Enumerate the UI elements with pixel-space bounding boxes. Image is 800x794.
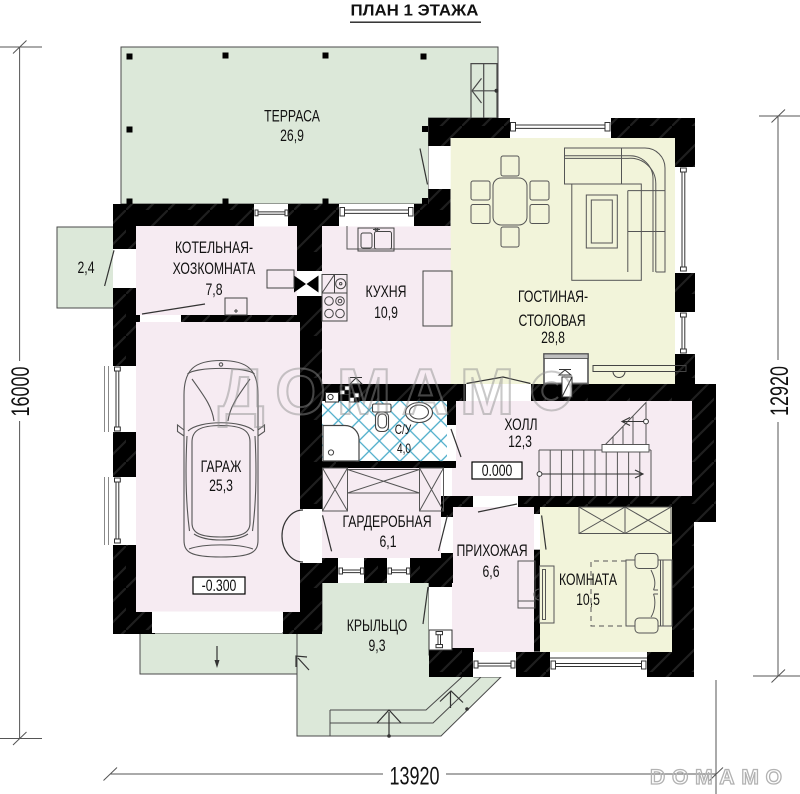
svg-text:-0.300: -0.300 xyxy=(202,576,237,595)
svg-text:26,9: 26,9 xyxy=(280,126,304,145)
svg-text:ХОЗКОМНАТА: ХОЗКОМНАТА xyxy=(173,259,256,278)
svg-text:25,3: 25,3 xyxy=(209,476,233,495)
svg-text:ГОСТИНАЯ-: ГОСТИНАЯ- xyxy=(518,287,588,306)
svg-text:КОТЕЛЬНАЯ-: КОТЕЛЬНАЯ- xyxy=(175,238,253,257)
svg-text:ПРИХОЖАЯ: ПРИХОЖАЯ xyxy=(456,541,527,560)
svg-text:ГАРАЖ: ГАРАЖ xyxy=(201,457,242,476)
svg-text:ДОМАМ: ДОМАМ xyxy=(218,355,525,428)
svg-text:16000: 16000 xyxy=(7,367,35,417)
svg-text:ПЛАН 1 ЭТАЖА: ПЛАН 1 ЭТАЖА xyxy=(351,3,479,20)
svg-text:9,3: 9,3 xyxy=(369,636,386,655)
svg-text:6,6: 6,6 xyxy=(483,562,500,581)
svg-text:2,4: 2,4 xyxy=(78,258,95,277)
svg-text:13920: 13920 xyxy=(390,763,440,791)
svg-text:6,1: 6,1 xyxy=(380,532,397,551)
svg-text:10,9: 10,9 xyxy=(374,303,398,322)
svg-text:0.000: 0.000 xyxy=(482,461,513,480)
svg-text:28,8: 28,8 xyxy=(541,328,565,347)
svg-text:DOMAMO: DOMAMO xyxy=(650,766,789,789)
svg-text:ТЕРРАСА: ТЕРРАСА xyxy=(264,107,320,126)
svg-text:ГАРДЕРОБНАЯ: ГАРДЕРОБНАЯ xyxy=(342,512,431,531)
svg-text:КУХНЯ: КУХНЯ xyxy=(366,282,407,301)
svg-text:4,0: 4,0 xyxy=(397,440,411,456)
svg-text:7,8: 7,8 xyxy=(206,280,223,299)
svg-text:10,5: 10,5 xyxy=(576,590,600,609)
svg-text:КОМНАТА: КОМНАТА xyxy=(559,570,617,589)
svg-text:КРЫЛЬЦО: КРЫЛЬЦО xyxy=(347,616,408,635)
svg-text:12,3: 12,3 xyxy=(508,432,532,451)
svg-text:12920: 12920 xyxy=(766,366,794,416)
